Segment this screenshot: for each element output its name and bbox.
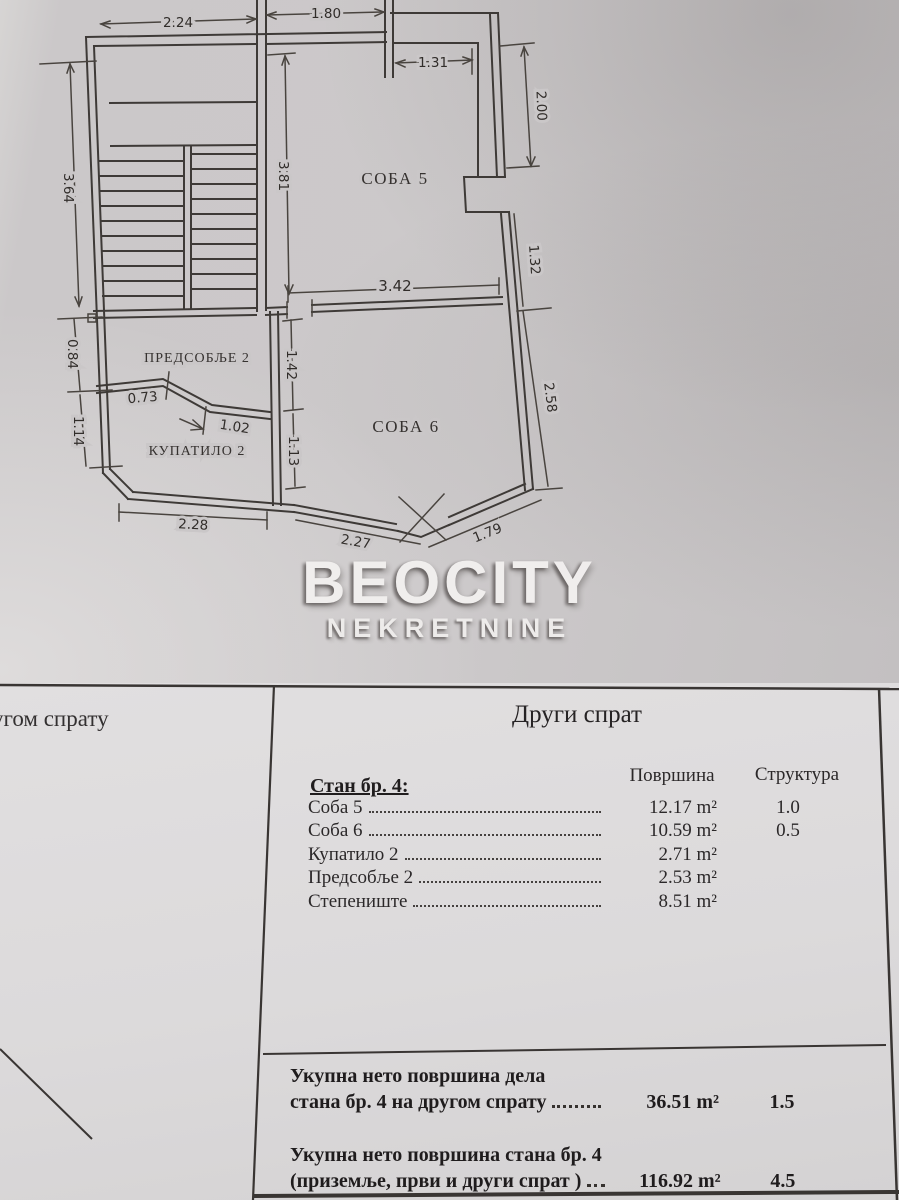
total-label: стана бр. 4 на другом спрату — [290, 1089, 546, 1115]
total-structure: 1.5 — [749, 1089, 815, 1115]
dim-niche: 1.31 — [418, 55, 448, 71]
row-area: 8.51 m² — [607, 891, 717, 913]
sheet-title: Други спрат — [274, 701, 880, 729]
dot-leader — [419, 881, 601, 883]
column-header-area: Површина — [620, 765, 724, 787]
row-structure: 0.5 — [753, 820, 823, 842]
row-area: 2.71 m² — [607, 844, 717, 866]
dimension-lines — [40, 9, 562, 547]
dot-leader — [587, 1184, 605, 1187]
row-structure: 1.0 — [753, 797, 823, 819]
row-label: Соба 6 — [308, 820, 363, 842]
dim-right-lower: 2.58 — [540, 382, 560, 414]
dim-soba5-height: 3.81 — [275, 161, 291, 191]
column-divider — [253, 685, 274, 1200]
apartment-label: Стан бр. 4: — [310, 775, 409, 798]
total-line2: (приземље, први и други спрат ) 116.92 m… — [290, 1168, 815, 1194]
table-row: Степениште 8.51 m² — [308, 891, 823, 914]
room-label-predsoblje: ПРЕДСОБЉЕ 2 — [144, 351, 250, 366]
dot-leader — [405, 858, 601, 860]
total-area: 36.51 m² — [609, 1089, 719, 1115]
floor-plan-drawing: 2.24 1.80 1.31 2.00 3.64 3.81 1.32 3.42 … — [0, 0, 899, 683]
dim-top-left: 2.24 — [163, 15, 193, 31]
room-label-kupatilo: КУПАТИЛО 2 — [149, 444, 246, 459]
row-area: 12.17 m² — [607, 797, 717, 819]
row-area: 2.53 m² — [607, 867, 717, 889]
staircase — [100, 102, 257, 309]
dim-top-right: 1.80 — [311, 6, 341, 22]
dim-bath-height: 1.13 — [285, 436, 301, 466]
dim-right-mid: 1.32 — [525, 244, 543, 275]
dot-leader — [552, 1105, 601, 1108]
dim-left-lower: 1.14 — [70, 416, 86, 446]
left-plan-fragment-line — [0, 1049, 92, 1139]
total-second-floor: Укупна нето површина дела стана бр. 4 на… — [290, 1063, 815, 1115]
dot-leader — [369, 834, 601, 836]
dot-leader — [369, 811, 601, 813]
room-label-soba5: СОБА 5 — [361, 169, 428, 188]
total-label: (приземље, први и други спрат ) — [290, 1168, 581, 1194]
dim-bottom-mid: 2.27 — [340, 532, 372, 553]
dim-right-upper: 2.00 — [532, 91, 549, 122]
entrance-door — [399, 494, 446, 542]
room-rows: Соба 5 12.17 m² 1.0 Соба 6 10.59 m² 0.5 … — [308, 797, 823, 914]
row-label: Предсобље 2 — [308, 867, 413, 889]
table-row: Предсобље 2 2.53 m² — [308, 867, 823, 890]
dim-hall-height: 1.42 — [283, 350, 299, 380]
table-row: Соба 5 12.17 m² 1.0 — [308, 797, 823, 820]
table-row: Соба 6 10.59 m² 0.5 — [308, 820, 823, 843]
row-area: 10.59 m² — [607, 820, 717, 842]
dim-bath-diag: 1.02 — [219, 417, 251, 438]
top-rule — [0, 685, 899, 689]
row-label: Купатило 2 — [308, 844, 399, 866]
summary-sheet: угом спрату Други спрат Стан бр. 4: Повр… — [0, 683, 899, 1200]
dim-left-mid: 0.84 — [64, 339, 80, 369]
dim-bath-top: 0.73 — [127, 389, 158, 408]
floor-plan-photo: 2.24 1.80 1.31 2.00 3.64 3.81 1.32 3.42 … — [0, 0, 899, 683]
left-column-note: угом спрату — [0, 706, 109, 732]
total-whole-apartment: Укупна нето површина стана бр. 4 (призем… — [290, 1142, 815, 1194]
page: 2.24 1.80 1.31 2.00 3.64 3.81 1.32 3.42 … — [0, 0, 899, 1200]
row-label: Соба 5 — [308, 797, 363, 819]
table-rules — [0, 683, 899, 1200]
dim-left-upper: 3.64 — [60, 173, 76, 203]
total-line1: Укупна нето површина дела — [290, 1063, 815, 1089]
room-label-soba6: СОБА 6 — [372, 417, 439, 436]
total-line1: Укупна нето површина стана бр. 4 — [290, 1142, 815, 1168]
total-structure: 4.5 — [751, 1168, 815, 1194]
right-rule — [879, 688, 897, 1200]
dim-bottom-right: 1.79 — [471, 520, 505, 546]
table-row: Купатило 2 2.71 m² — [308, 844, 823, 867]
row-label: Степениште — [308, 891, 407, 913]
total-line2: стана бр. 4 на другом спрату 36.51 m² 1.… — [290, 1089, 815, 1115]
interior-walls — [94, 0, 502, 505]
total-area: 116.92 m² — [613, 1168, 720, 1194]
column-header-structure: Структура — [742, 764, 852, 786]
dot-leader — [413, 905, 601, 907]
dim-bottom-left: 2.28 — [178, 516, 209, 534]
dim-mid-width: 3.42 — [378, 277, 411, 295]
totals-divider — [263, 1045, 886, 1054]
